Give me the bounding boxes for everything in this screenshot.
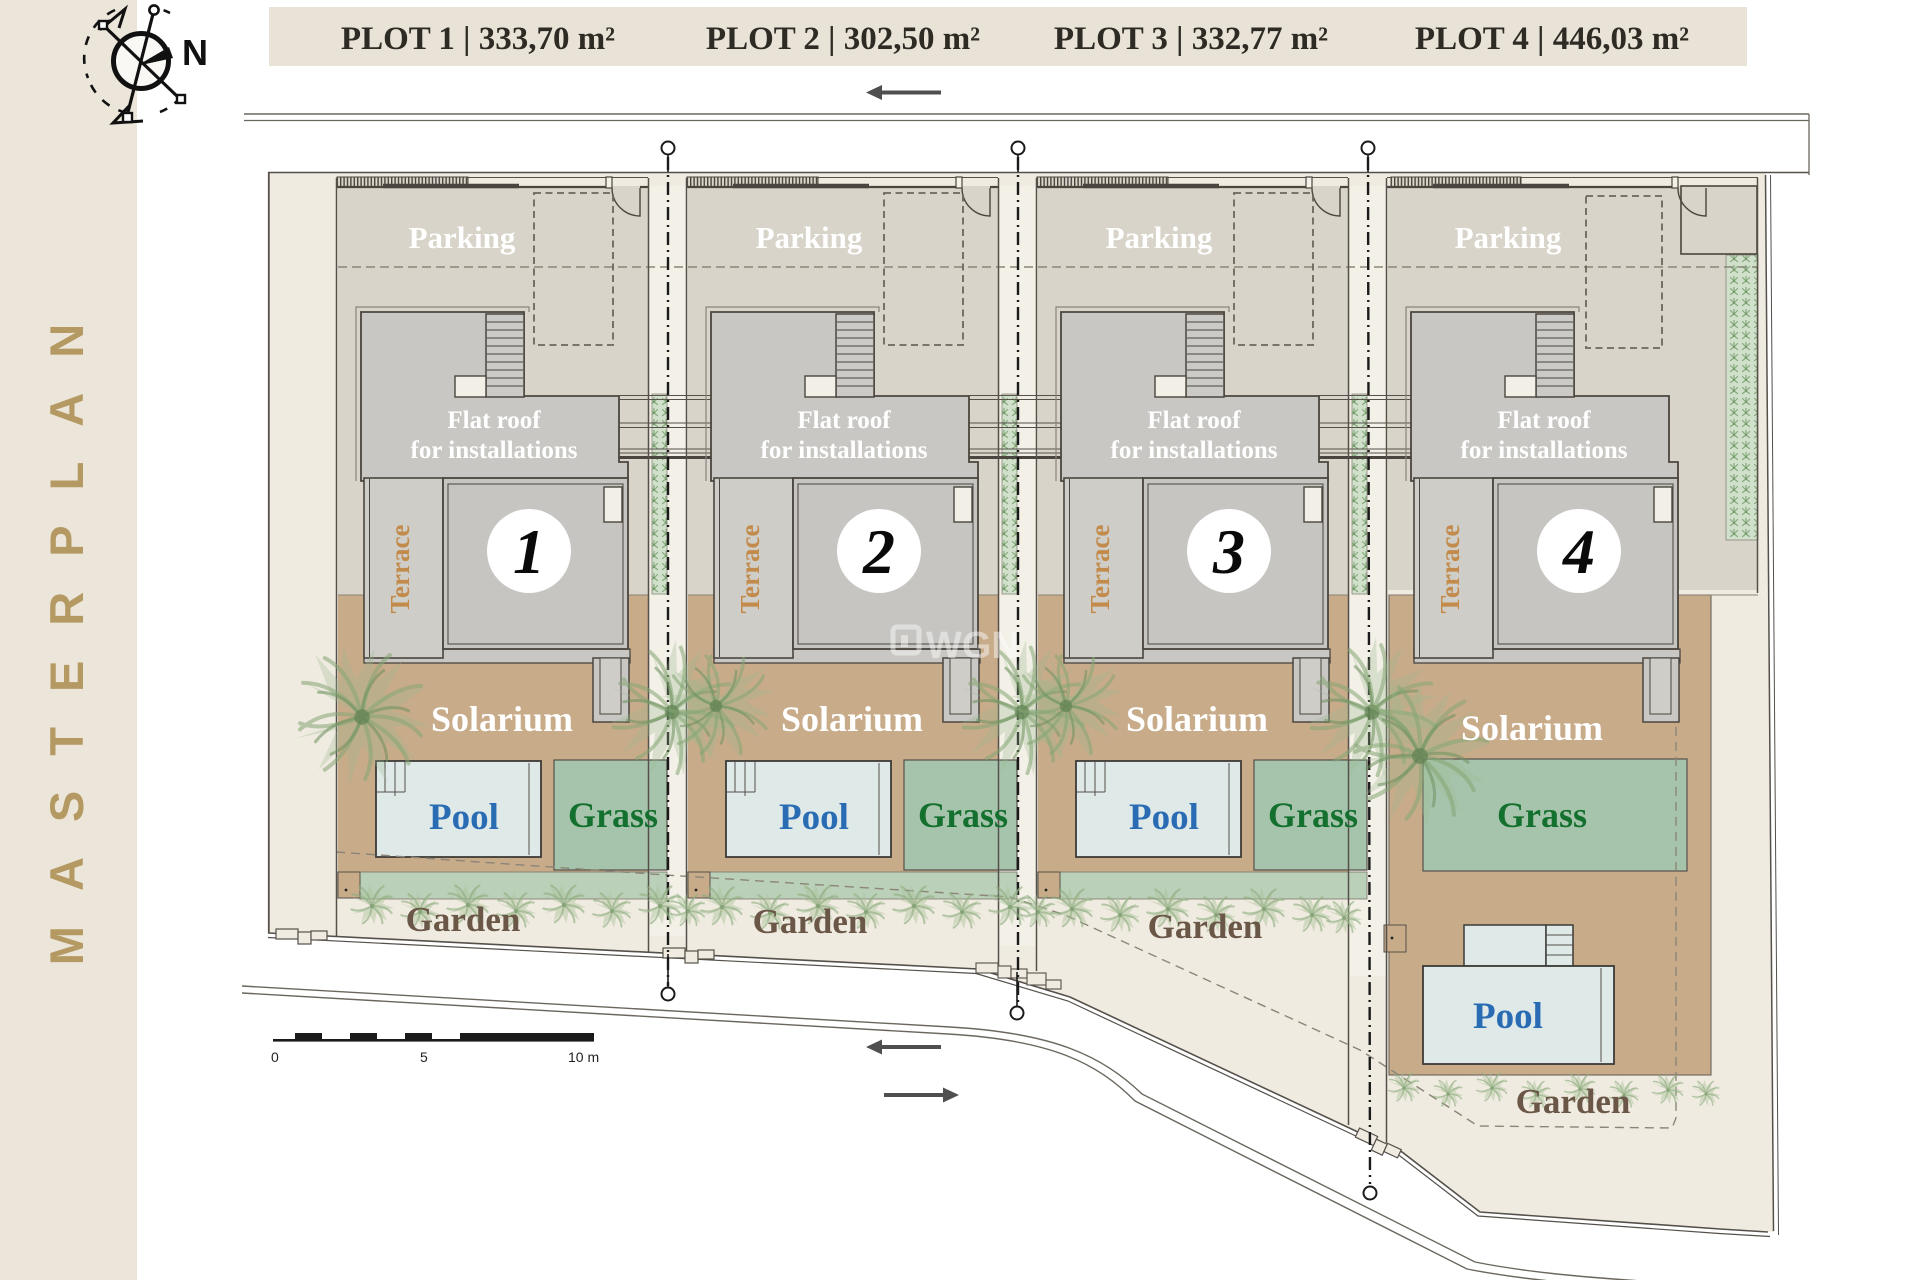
svg-text:1: 1 [513,516,545,587]
svg-text:Solarium: Solarium [1461,708,1603,748]
svg-text:Garden: Garden [406,900,521,939]
svg-text:Solarium: Solarium [1126,699,1268,739]
svg-text:Terrace: Terrace [1435,525,1465,614]
svg-text:Parking: Parking [1106,220,1213,255]
svg-text:MASTERPLAN: MASTERPLAN [40,289,93,965]
svg-text:Parking: Parking [756,220,863,255]
svg-text:Solarium: Solarium [781,699,923,739]
svg-text:Pool: Pool [1129,797,1199,838]
svg-text:Flat roof: Flat roof [1147,407,1241,434]
svg-text:Terrace: Terrace [1085,525,1115,614]
svg-text:Grass: Grass [1497,795,1587,835]
svg-text:3: 3 [1212,516,1245,587]
svg-text:Pool: Pool [779,797,849,838]
svg-text:PLOT 2 | 302,50 m²: PLOT 2 | 302,50 m² [706,21,980,57]
svg-text:Terrace: Terrace [385,525,415,614]
svg-text:10 m: 10 m [568,1049,599,1065]
svg-text:Parking: Parking [409,220,516,255]
svg-text:WGN: WGN [926,625,1019,667]
svg-text:Flat roof: Flat roof [797,407,891,434]
svg-text:Grass: Grass [568,795,658,835]
svg-text:4: 4 [1562,516,1595,587]
svg-text:Flat roof: Flat roof [1497,407,1591,434]
svg-text:PLOT 4 | 446,03 m²: PLOT 4 | 446,03 m² [1415,21,1689,57]
svg-text:N: N [182,32,208,73]
svg-text:for installations: for installations [411,437,578,464]
svg-text:PLOT 1 | 333,70 m²: PLOT 1 | 333,70 m² [341,21,615,57]
svg-text:Flat roof: Flat roof [447,407,541,434]
svg-text:Pool: Pool [429,797,499,838]
svg-text:Pool: Pool [1473,996,1543,1037]
svg-text:Parking: Parking [1455,220,1562,255]
svg-text:Solarium: Solarium [431,699,573,739]
svg-text:Grass: Grass [1268,795,1358,835]
svg-text:Garden: Garden [753,902,868,941]
svg-text:Garden: Garden [1148,907,1263,946]
svg-text:for installations: for installations [761,437,928,464]
svg-text:Terrace: Terrace [735,525,765,614]
svg-text:Grass: Grass [918,795,1008,835]
svg-text:for installations: for installations [1111,437,1278,464]
svg-text:PLOT 3 | 332,77 m²: PLOT 3 | 332,77 m² [1054,21,1328,57]
svg-text:Garden: Garden [1516,1082,1631,1121]
svg-text:0: 0 [271,1049,279,1065]
svg-text:2: 2 [862,516,895,587]
svg-text:for installations: for installations [1461,437,1628,464]
svg-text:5: 5 [420,1049,428,1065]
